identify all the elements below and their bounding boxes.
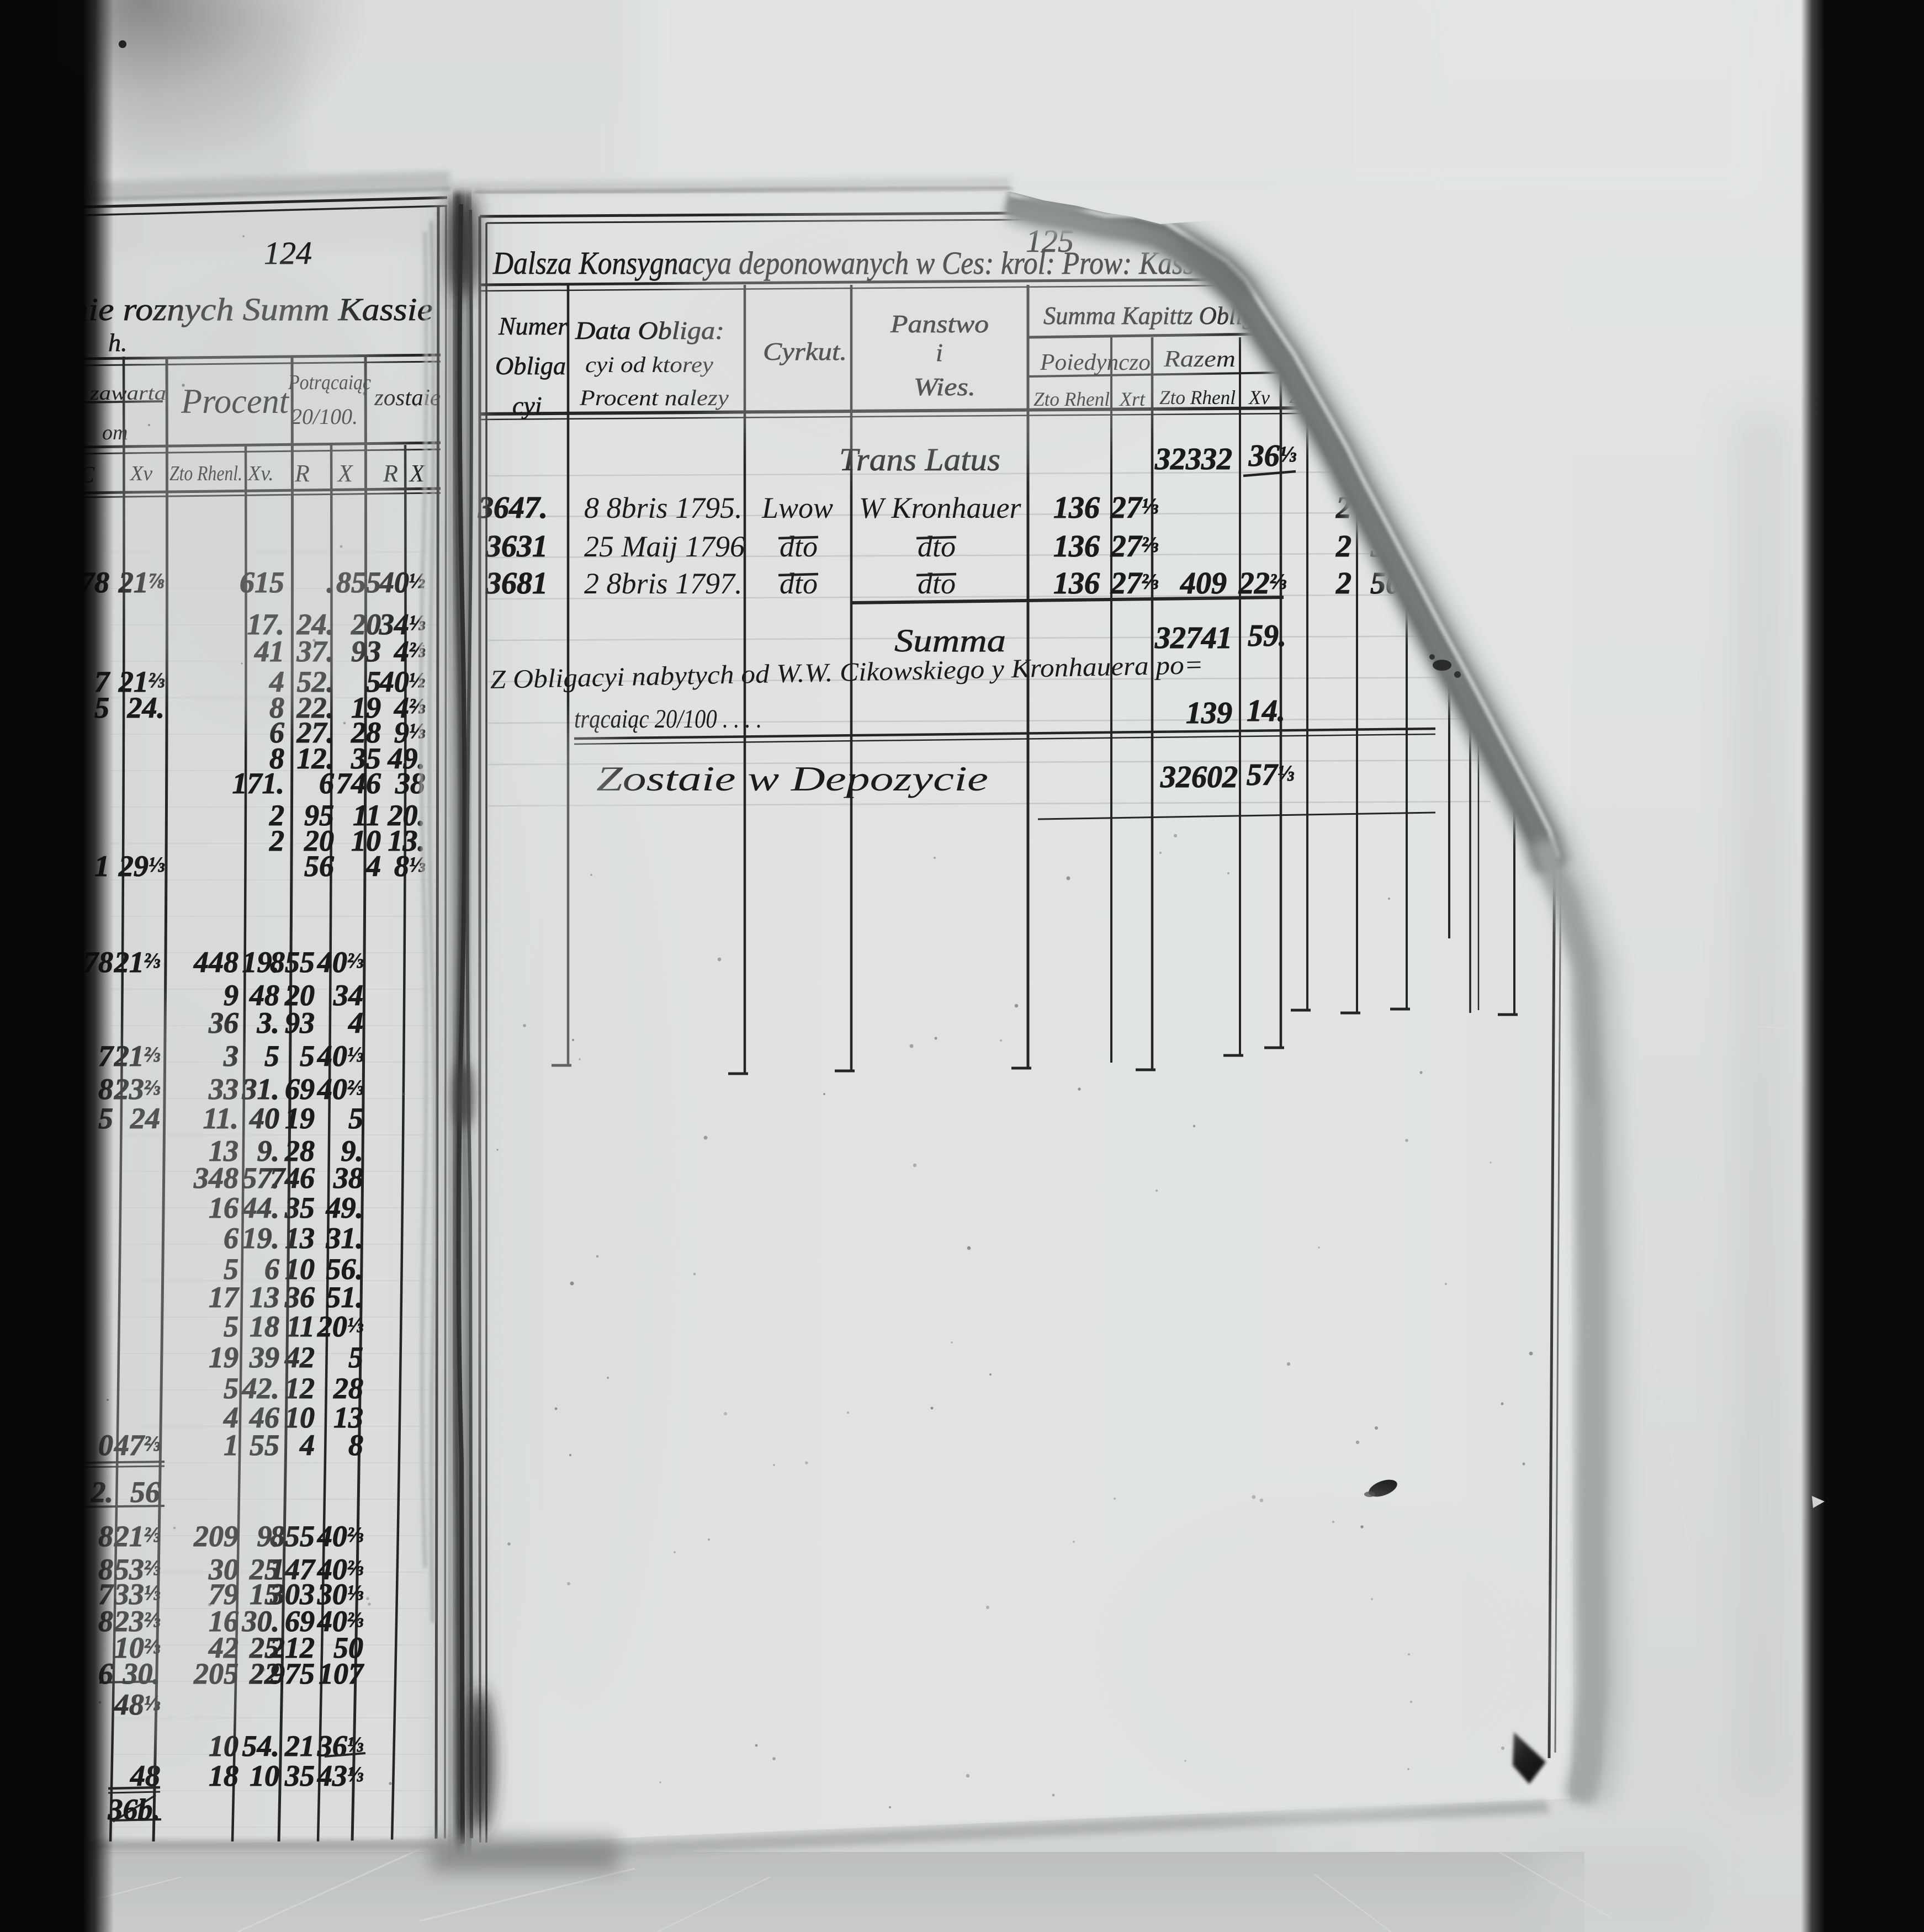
svg-text:4: 4	[299, 1429, 315, 1462]
svg-text:4: 4	[365, 850, 381, 883]
svg-text:13: 13	[285, 1222, 315, 1255]
svg-text:136: 136	[1053, 529, 1100, 564]
svg-text:3.: 3.	[257, 1006, 280, 1039]
svg-text:56: 56	[304, 850, 334, 883]
svg-text:cyi: cyi	[512, 391, 542, 420]
svg-text:69: 69	[285, 1073, 315, 1106]
svg-text:24.: 24.	[127, 691, 165, 724]
svg-text:2: 2	[1335, 529, 1351, 564]
svg-text:3647.: 3647.	[478, 491, 548, 525]
svg-text:Numer: Numer	[498, 312, 568, 340]
svg-text:136: 136	[1053, 566, 1100, 601]
svg-text:dto: dto	[780, 567, 818, 600]
svg-text:Xv: Xv	[1248, 386, 1270, 408]
svg-text:5: 5	[264, 1039, 279, 1073]
svg-text:dto: dto	[780, 530, 818, 563]
svg-text:Summa: Summa	[894, 623, 1006, 659]
svg-text:49.: 49.	[326, 1191, 364, 1224]
svg-text:139: 139	[1186, 696, 1232, 730]
svg-text:975: 975	[270, 1657, 315, 1690]
svg-text:54.: 54.	[242, 1729, 280, 1763]
svg-text:35: 35	[284, 1191, 315, 1224]
svg-text:855: 855	[270, 946, 315, 979]
svg-text:5: 5	[348, 1341, 363, 1374]
svg-text:8 8bris 1795.: 8 8bris 1795.	[584, 491, 743, 524]
svg-text:3681: 3681	[485, 566, 548, 601]
svg-text:2: 2	[269, 824, 284, 857]
svg-text:25 Maij 1796: 25 Maij 1796	[584, 530, 745, 563]
svg-text:51.: 51.	[326, 1281, 364, 1314]
svg-text:X: X	[409, 460, 426, 487]
svg-text:48: 48	[130, 1759, 160, 1792]
svg-text:32602: 32602	[1160, 760, 1238, 794]
svg-text:5: 5	[348, 1102, 363, 1135]
svg-text:31.: 31.	[326, 1222, 364, 1255]
svg-text:171.: 171.	[232, 767, 285, 800]
svg-text:136: 136	[1053, 491, 1100, 525]
svg-text:59.: 59.	[1248, 619, 1286, 653]
svg-text:Zostaie w Depozycie: Zostaie w Depozycie	[596, 759, 988, 798]
svg-text:124: 124	[264, 235, 312, 271]
svg-text:5: 5	[300, 1039, 315, 1073]
svg-text:32332: 32332	[1154, 442, 1232, 476]
svg-text:19: 19	[285, 1102, 315, 1135]
svg-text:107: 107	[319, 1657, 364, 1690]
svg-text:448: 448	[193, 946, 238, 979]
svg-text:93: 93	[285, 1006, 315, 1039]
svg-text:trącaiąc 20/100 . . . .: trącaiąc 20/100 . . . .	[574, 704, 762, 734]
svg-text:6: 6	[319, 767, 334, 800]
svg-text:2: 2	[1335, 566, 1351, 601]
svg-text:14.: 14.	[1247, 694, 1285, 728]
svg-text:4: 4	[348, 1006, 363, 1039]
svg-text:Lwow: Lwow	[761, 491, 833, 524]
svg-text:W Kronhauer: W Kronhauer	[859, 491, 1021, 524]
svg-text:35: 35	[284, 1759, 315, 1792]
svg-text:2 8bris 1797.: 2 8bris 1797.	[584, 567, 743, 600]
svg-text:dto: dto	[918, 530, 956, 563]
svg-text:38: 38	[333, 1161, 363, 1195]
svg-text:Obliga: Obliga	[495, 352, 566, 380]
svg-text:21: 21	[284, 1729, 315, 1763]
svg-text:409: 409	[1180, 566, 1227, 601]
svg-text:8: 8	[348, 1429, 363, 1462]
svg-text:36b.: 36b.	[108, 1793, 161, 1826]
svg-text:28: 28	[333, 1372, 363, 1405]
svg-text:3631: 3631	[485, 529, 548, 564]
svg-text:dto: dto	[918, 567, 956, 600]
svg-text:10: 10	[250, 1759, 279, 1792]
svg-text:746: 746	[336, 767, 381, 800]
svg-text:18: 18	[209, 1759, 238, 1792]
